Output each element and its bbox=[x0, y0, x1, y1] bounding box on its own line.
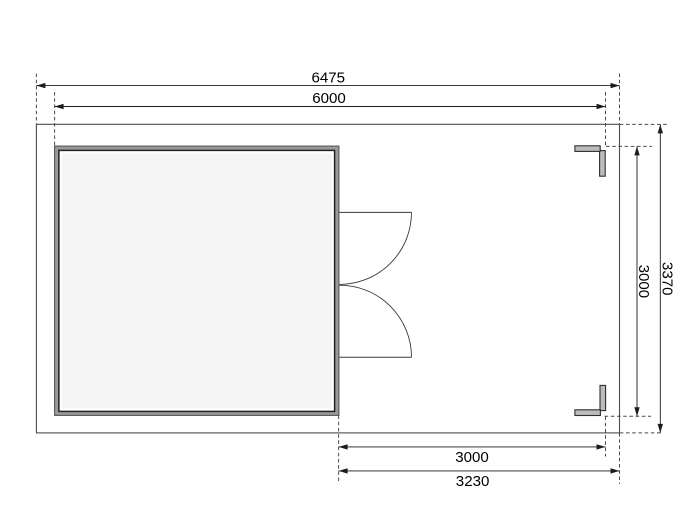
svg-text:3370: 3370 bbox=[658, 262, 675, 296]
svg-text:3230: 3230 bbox=[456, 473, 490, 490]
svg-text:3000: 3000 bbox=[635, 265, 652, 299]
svg-text:6475: 6475 bbox=[312, 69, 346, 86]
svg-text:3000: 3000 bbox=[455, 449, 489, 466]
svg-text:6000: 6000 bbox=[312, 90, 346, 107]
